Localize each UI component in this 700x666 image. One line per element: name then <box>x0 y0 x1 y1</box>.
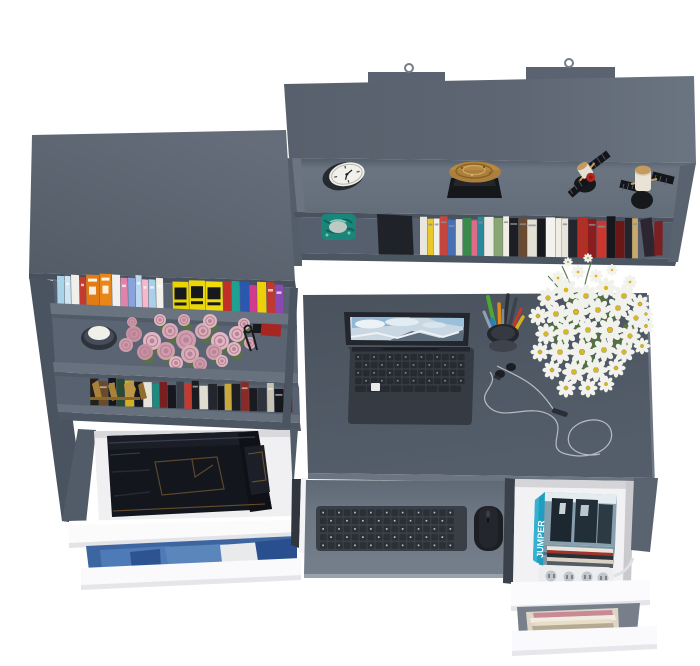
svg-text:JUMPER: JUMPER <box>535 520 546 558</box>
